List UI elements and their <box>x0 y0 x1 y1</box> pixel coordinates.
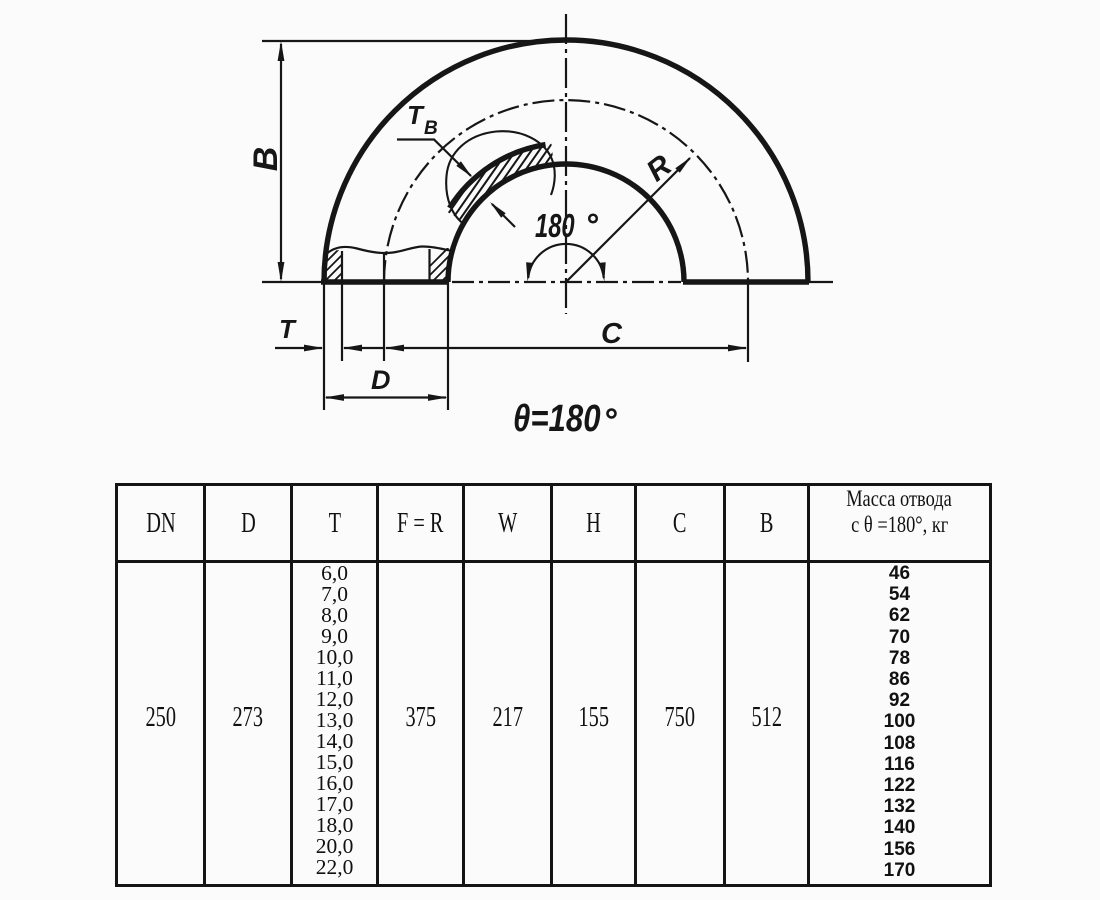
svg-text:180: 180 <box>535 208 575 245</box>
svg-text:R: R <box>640 149 678 189</box>
svg-text:B: B <box>424 118 438 139</box>
svg-text:D: D <box>371 365 391 395</box>
svg-text:C: C <box>601 318 623 350</box>
svg-text:T: T <box>279 314 297 344</box>
svg-text:T: T <box>407 100 425 130</box>
svg-text:B: B <box>247 147 285 172</box>
svg-text:θ=180: θ=180 <box>513 398 601 440</box>
